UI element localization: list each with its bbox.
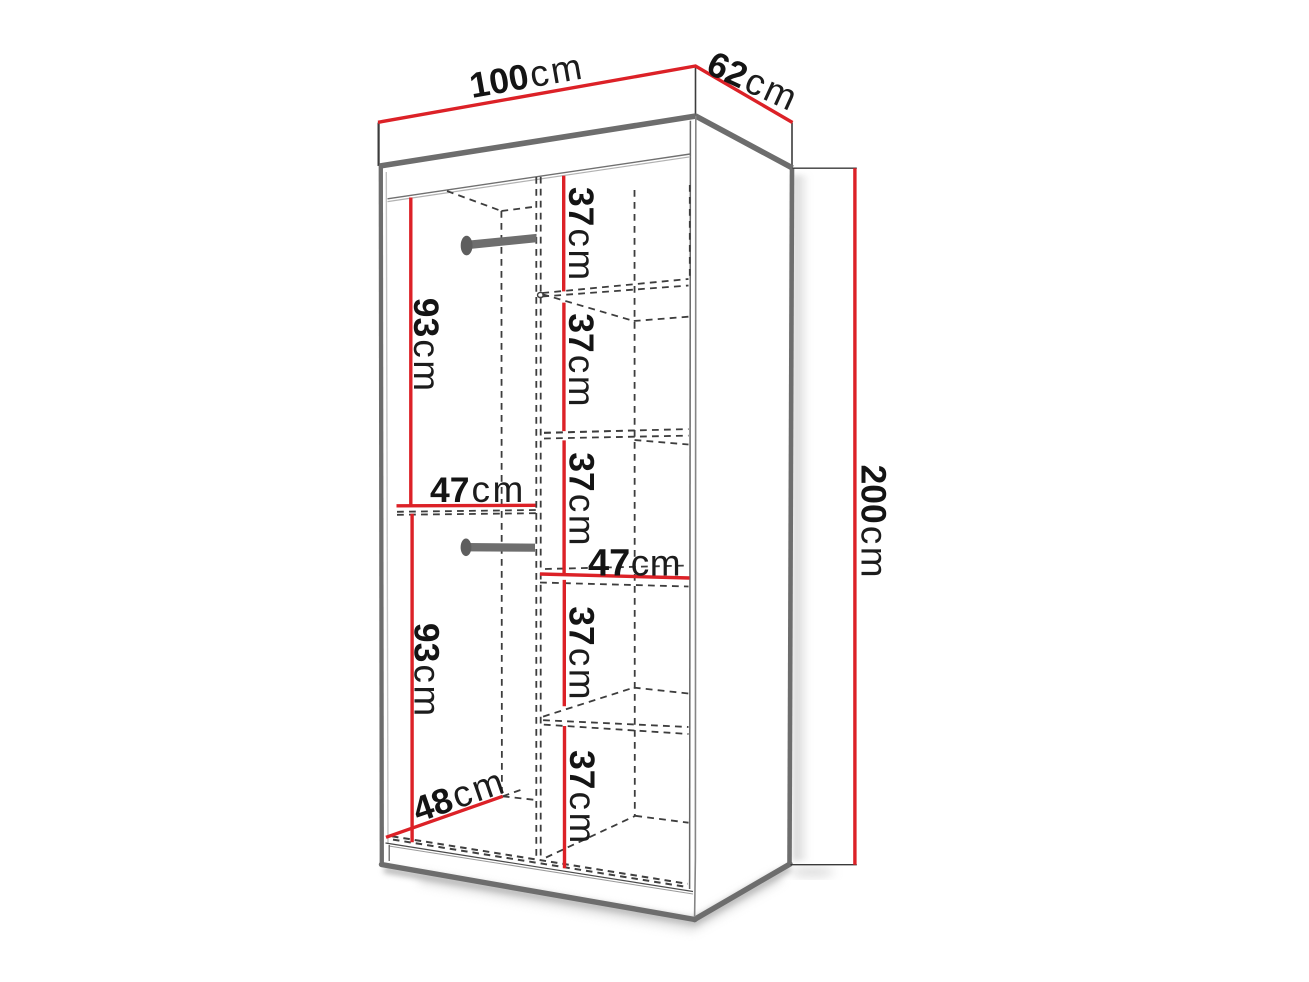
svg-text:37cm: 37cm [562,606,603,702]
svg-text:48cm: 48cm [407,760,511,830]
svg-text:200cm: 200cm [854,465,895,581]
svg-text:93cm: 93cm [407,623,448,719]
svg-text:37cm: 37cm [561,187,602,283]
svg-text:37cm: 37cm [561,452,602,548]
svg-text:47cm: 47cm [588,543,681,585]
svg-text:37cm: 37cm [562,750,603,846]
svg-text:93cm: 93cm [406,298,447,394]
svg-text:47cm: 47cm [430,469,526,510]
svg-text:37cm: 37cm [561,313,602,409]
